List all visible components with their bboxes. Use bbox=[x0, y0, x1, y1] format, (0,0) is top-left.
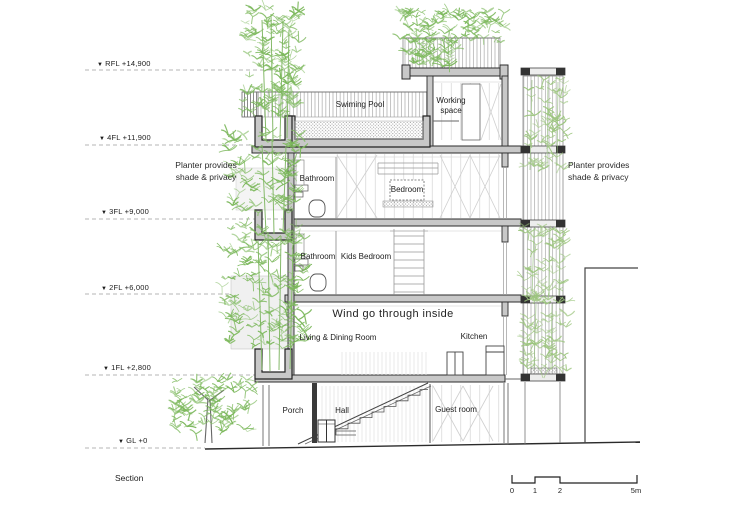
room-label-porch: Porch bbox=[283, 406, 304, 416]
roof-cap-left bbox=[402, 65, 410, 79]
level-triangle-icon: ▼ bbox=[103, 366, 109, 372]
level-triangle-icon: ▼ bbox=[101, 210, 107, 216]
right-wall-stub-2f bbox=[502, 302, 508, 316]
room-label-guest-room: Guest room bbox=[435, 405, 477, 415]
room-label-hall: Hall bbox=[335, 406, 349, 416]
scale-tick-2: 2 bbox=[558, 486, 562, 495]
room-label-working-space: Working space bbox=[428, 96, 474, 115]
planter-box-4fl bbox=[255, 116, 292, 147]
scale-bar bbox=[512, 475, 637, 483]
level-label-rfl: ▼RFL +14,900 bbox=[97, 59, 151, 69]
pool-water bbox=[295, 121, 423, 139]
room-label-bathroom-4f: Bathroom bbox=[300, 174, 335, 184]
right-wall-stub-3f bbox=[502, 226, 508, 242]
level-label-4fl: ▼4FL +11,900 bbox=[99, 133, 151, 143]
level-triangle-icon: ▼ bbox=[97, 62, 103, 68]
level-label-gl: ▼GL +0 bbox=[118, 436, 148, 446]
swimming-pool-basin bbox=[288, 116, 430, 147]
hall-cabinet bbox=[318, 420, 335, 442]
annotation-planter-left: Planter provides shade & privacy bbox=[168, 160, 244, 184]
level-triangle-icon: ▼ bbox=[99, 136, 105, 142]
slab-2fl bbox=[285, 295, 521, 302]
section-drawing-sheet: ▼RFL +14,900 ▼4FL +11,900 ▼3FL +9,000 ▼2… bbox=[0, 0, 750, 530]
right-glass-lines bbox=[504, 167, 507, 375]
toilet bbox=[309, 200, 326, 291]
room-label-bathroom-3f: Bathroom bbox=[301, 252, 336, 262]
level-label-2fl: ▼2FL +6,000 bbox=[101, 283, 149, 293]
room-label-kitchen: Kitchen bbox=[461, 332, 488, 342]
planter-box-1fl bbox=[255, 349, 292, 379]
porch-wall bbox=[312, 383, 317, 443]
penthouse-right-wall bbox=[502, 76, 508, 146]
room-label-bedroom: Bedroom bbox=[391, 185, 423, 195]
stair-upper bbox=[390, 229, 428, 295]
slab-3fl bbox=[285, 219, 521, 226]
scale-tick-1: 1 bbox=[533, 486, 537, 495]
room-label-swimming-pool: Swiming Pool bbox=[336, 100, 384, 110]
level-label-1fl: ▼1FL +2,800 bbox=[103, 363, 151, 373]
annotation-wind: Wind go through inside bbox=[332, 308, 453, 321]
room-label-kids-bedroom: Kids Bedroom bbox=[341, 252, 391, 262]
screen-planter-soil bbox=[531, 368, 557, 374]
section-linework bbox=[0, 0, 750, 530]
drawing-caption: Section bbox=[115, 473, 143, 483]
room-label-living-dining: Living & Dining Room bbox=[300, 333, 377, 343]
kitchen-counter bbox=[447, 346, 504, 375]
site-wall bbox=[585, 268, 638, 443]
scale-tick-0: 0 bbox=[510, 486, 514, 495]
roof-slab bbox=[403, 68, 508, 76]
scale-tick-5m: 5m bbox=[631, 486, 641, 495]
annotation-planter-right: Planter provides shade & privacy bbox=[568, 160, 640, 184]
level-label-3fl: ▼3FL +9,000 bbox=[101, 207, 149, 217]
right-wall-stub-4f bbox=[502, 153, 508, 167]
living-floor-mat bbox=[340, 352, 428, 375]
level-triangle-icon: ▼ bbox=[118, 439, 124, 445]
level-triangle-icon: ▼ bbox=[101, 286, 107, 292]
